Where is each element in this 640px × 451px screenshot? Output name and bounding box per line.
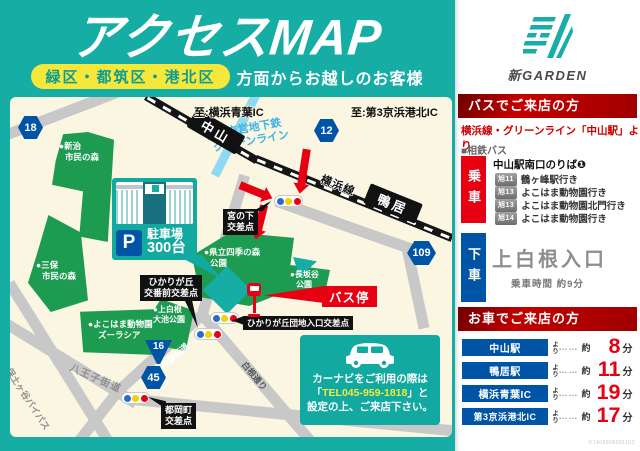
park-label-zoorasia: ●よこはま動物園ズーラシア (88, 319, 153, 340)
bus-route-row: 旭11 鶴ヶ峰駅行き (495, 172, 578, 186)
brand-name: 新GARDEN (455, 65, 640, 84)
page-title: アクセスMAP (0, 0, 459, 70)
park-label-miho: ●三保市民の森 (36, 260, 76, 281)
car-from: 中山駅 (462, 339, 548, 356)
ride-time: 乗車時間 約9分 (511, 276, 584, 290)
park-label-niiharu: ●新治市民の森 (59, 141, 99, 162)
car-minutes: 8 (591, 336, 621, 358)
car-navi-note: カーナビをご利用の際は 「TEL045-959-1818」と 設定の上、ご来店下… (300, 335, 440, 425)
car-minutes: 17 (591, 405, 621, 427)
intersection-label-kobanmae: ひかりが丘交番前交差点 (140, 275, 202, 301)
alight-stop: 上白根入口 (492, 243, 607, 272)
car-time-row: 鴨居駅 より …… 約 11 分 (462, 360, 637, 380)
brand-logo-icon (523, 14, 573, 58)
access-map-poster: アクセスMAP 緑区・都筑区・港北区 方面からお越しのお客様 (0, 0, 640, 451)
subtitle-row: 緑区・都筑区・港北区 方面からお越しのお客様 (0, 64, 455, 89)
bus-stop-icon (246, 283, 262, 317)
intersection-label-danchi: ひかりが丘団地入口交差点 (243, 316, 353, 330)
car-from: 横浜青葉IC (462, 385, 548, 402)
road-label-hodogaya: 保土ヶ谷バイパス (10, 365, 53, 432)
intersection-label-miyanoshita: 宮の下交差点 (223, 209, 258, 235)
map-canvas: ●新治市民の森 ●三保市民の森 ●県立四季の森公園 ●長坂谷公園 ●よこはま動物… (10, 97, 452, 437)
dest-label-aoba-ic: 至:横浜青葉IC (194, 104, 264, 120)
traffic-light-miyanoshita (274, 195, 303, 207)
car-section-header: お車でご来店の方 (458, 307, 637, 331)
traffic-light-danchi (210, 312, 239, 324)
info-sidebar: 新GARDEN バスでご来店の方 横浜線・グリーンライン「中山駅」より ■相鉄バ… (455, 0, 640, 451)
parking-icon: P (116, 230, 142, 256)
car-from: 第3京浜港北IC (462, 408, 548, 425)
parking-callout: P 駐車場 300台 (112, 178, 197, 260)
park-label-oike: ●上白根大池公園 (153, 305, 185, 325)
bus-section-header: バスでご来店の方 (458, 94, 637, 118)
store-building-illustration (116, 182, 193, 224)
board-stop: 中山駅南口のりば❶ (493, 157, 586, 172)
route-number-badge: 旭14 (495, 212, 517, 225)
parking-count: 300台 (147, 241, 186, 257)
car-minutes: 11 (591, 359, 621, 381)
car-time-row: 第3京浜港北IC より …… 約 17 分 (462, 406, 637, 426)
park-label-shikinomori: ●県立四季の森公園 (204, 247, 260, 268)
dest-label-kohoku-ic: 至:第3京浜港北IC (351, 104, 438, 120)
intersection-label-tsuoka: 都岡町交差点 (161, 403, 196, 429)
route-number-badge: 旭11 (495, 173, 517, 186)
car-from: 鴨居駅 (462, 362, 548, 379)
car-time-row: 横浜青葉IC より …… 約 19 分 (462, 383, 637, 403)
bus-stop-callout: バス停 (322, 286, 377, 307)
board-badge: 乗車 (461, 156, 486, 223)
bus-company: ■相鉄バス (461, 142, 507, 157)
route-badge-12: 12 (314, 119, 339, 142)
bus-route-row: 旭13 よこはま動物園北門行き (495, 198, 626, 212)
car-icon (343, 341, 397, 369)
bus-route-row: 旭13 よこはま動物園行き (495, 185, 607, 199)
store-logo-mark (152, 185, 159, 192)
alight-badge: 下車 (461, 233, 486, 302)
car-time-row: 中山駅 より …… 約 8 分 (462, 337, 637, 357)
traffic-light-tsuoka (121, 392, 150, 404)
route-number-badge: 旭13 (495, 199, 517, 212)
subtitle-text: 方面からお越しのお客様 (237, 65, 424, 89)
bus-route-row: 旭14 よこはま動物園行き (495, 211, 607, 225)
navi-instructions: カーナビをご利用の際は 「TEL045-959-1818」と 設定の上、ご来店下… (307, 372, 433, 415)
park-label-nagasakaya: ●長坂谷公園 (290, 270, 319, 290)
map-panel: アクセスMAP 緑区・都筑区・港北区 方面からお越しのお客様 (0, 0, 455, 451)
car-minutes: 19 (591, 382, 621, 404)
road-label-shirane: 白根通り (239, 359, 270, 393)
route-number-badge: 旭13 (495, 186, 517, 199)
phone-number: TEL045-959-1818 (322, 387, 407, 399)
area-pill: 緑区・都筑区・港北区 (31, 64, 229, 89)
traffic-light-kobanmae (194, 328, 223, 340)
brand-block: 新GARDEN (455, 14, 640, 84)
footer-code: ©1409808081103 (589, 440, 635, 446)
